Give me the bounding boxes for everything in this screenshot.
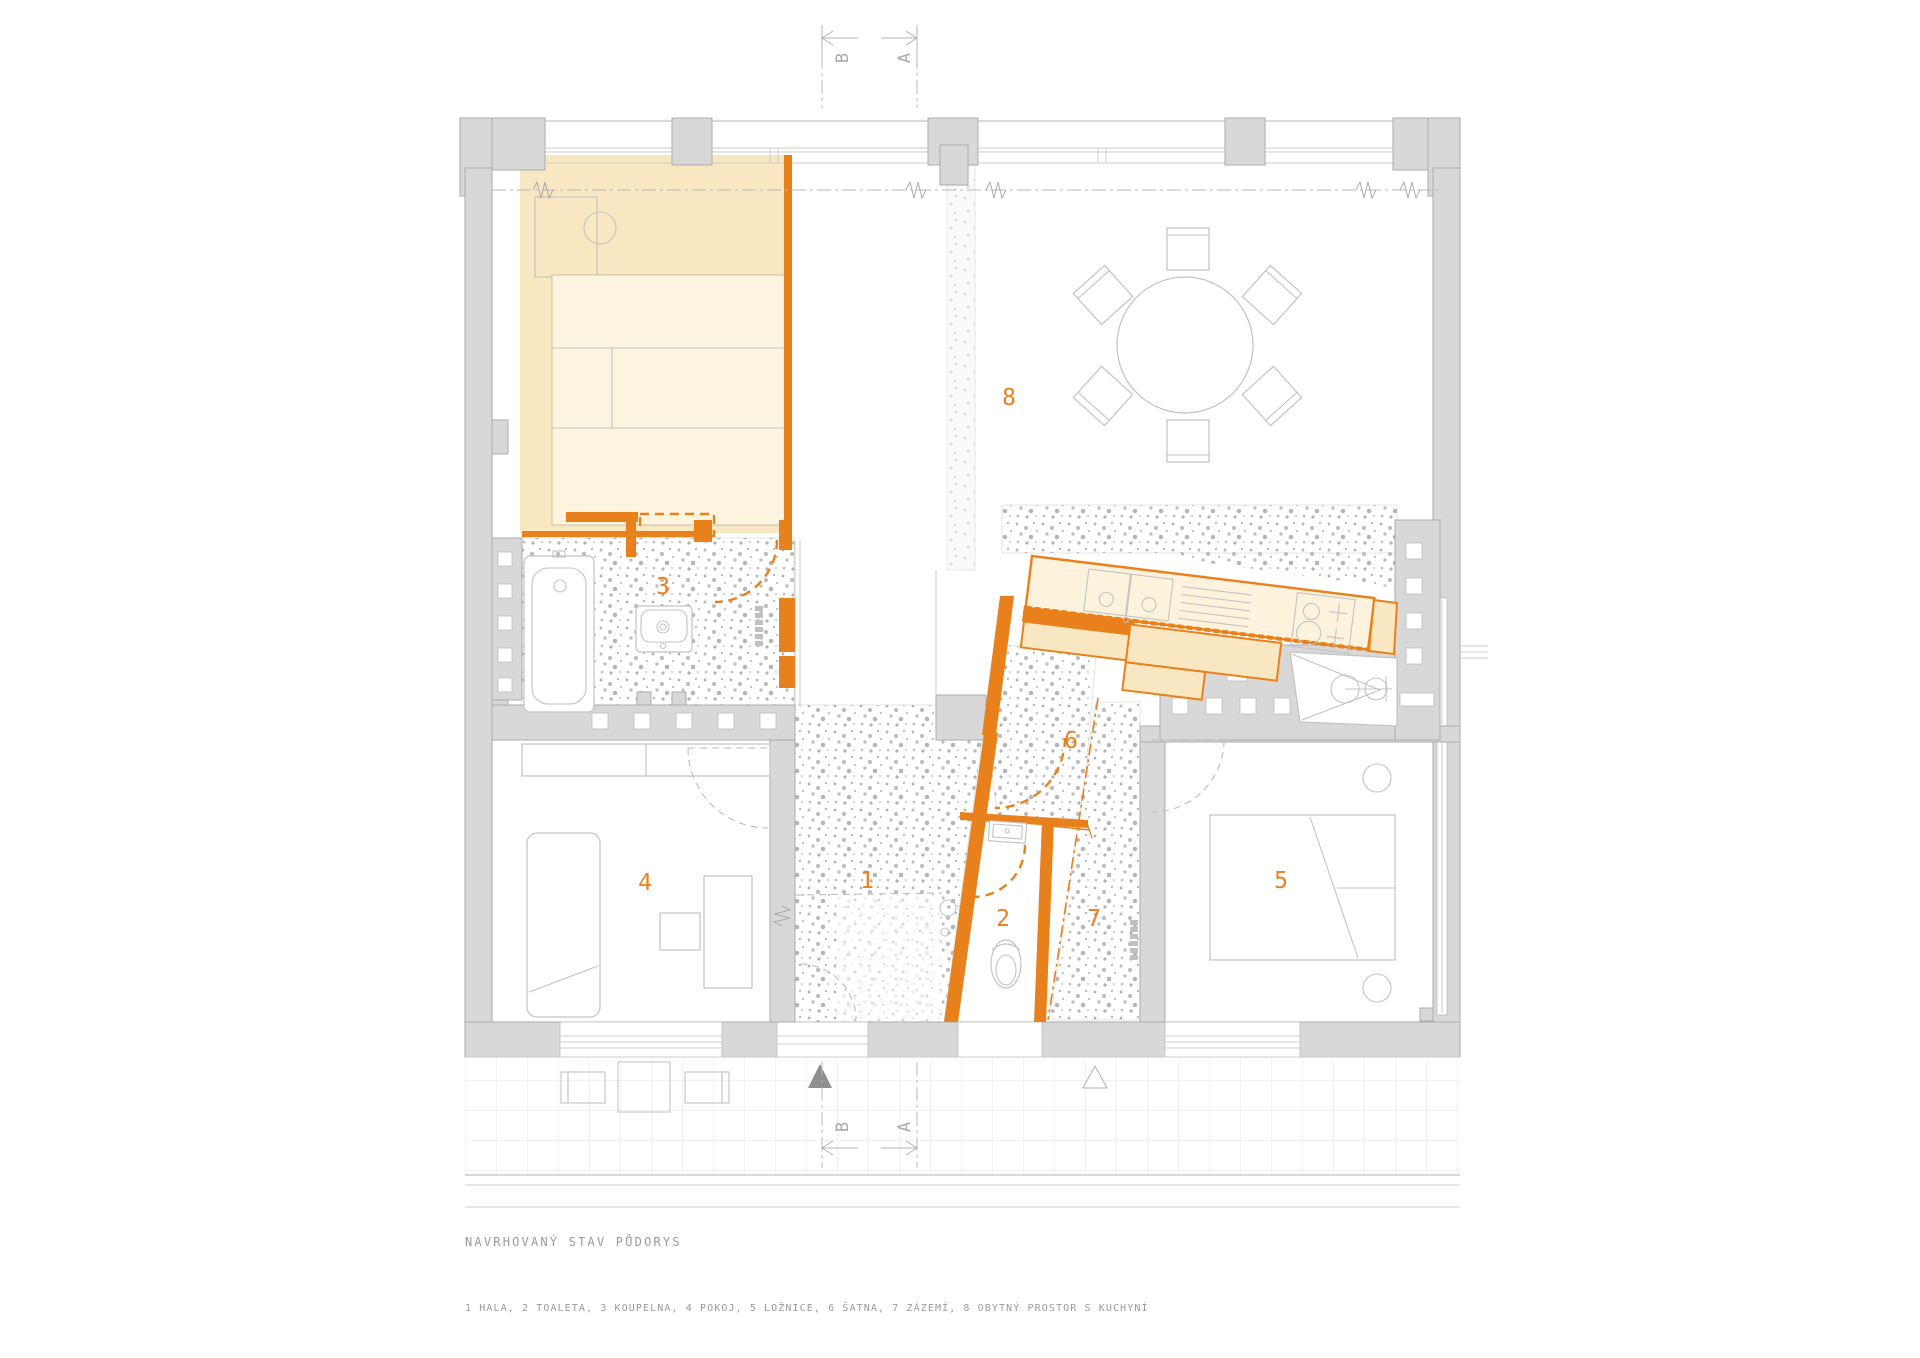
room-number-7: 7 xyxy=(1087,906,1101,932)
toilet-sink xyxy=(988,821,1026,844)
bedside-table xyxy=(1363,764,1391,792)
chair xyxy=(1242,366,1301,425)
demolished-wall-strip xyxy=(947,163,975,570)
drawing-title: NAVRHOVANÝ STAV PŮDORYS xyxy=(465,1234,682,1249)
drawing-legend: 1 HALA, 2 TOALETA, 3 KOUPELNA, 4 POKOJ, … xyxy=(465,1301,1149,1314)
shower xyxy=(1290,652,1397,726)
section-label-a-top: A xyxy=(895,53,915,63)
section-label-a-bottom: A xyxy=(895,1122,915,1132)
chair xyxy=(1167,228,1209,270)
floor-plan-page: B A B A 1 2 3 4 5 6 7 8 NAVRHOVANÝ STAV … xyxy=(0,0,1920,1358)
bedside-table xyxy=(1363,974,1391,1002)
terrace xyxy=(465,1057,1460,1207)
room-number-6: 6 xyxy=(1064,728,1078,754)
double-bed xyxy=(552,275,788,525)
floor-plan-drawing: B A B A 1 2 3 4 5 6 7 8 NAVRHOVANÝ STAV … xyxy=(0,0,1920,1358)
new-walls-bathroom xyxy=(779,598,795,688)
chair xyxy=(1242,265,1301,324)
round-table xyxy=(1117,277,1253,413)
double-bed xyxy=(1210,815,1395,960)
room-number-5: 5 xyxy=(1274,868,1288,894)
dining-set xyxy=(1073,228,1301,462)
chair xyxy=(1167,420,1209,462)
room-4 xyxy=(522,744,790,1017)
washbasin xyxy=(636,606,692,652)
desk xyxy=(660,876,752,988)
room-number-3: 3 xyxy=(656,574,670,600)
section-markers-top: B A xyxy=(822,25,917,108)
room-number-8: 8 xyxy=(1002,385,1016,411)
single-bed xyxy=(527,833,600,1017)
wardrobe xyxy=(522,744,770,776)
room-number-2: 2 xyxy=(996,906,1010,932)
kitchen-end-cabinet xyxy=(1369,600,1397,654)
toilet xyxy=(991,940,1021,988)
section-label-b-top: B xyxy=(833,53,853,63)
room-number-4: 4 xyxy=(638,870,652,896)
room-number-1: 1 xyxy=(860,868,874,894)
bathtub xyxy=(524,551,594,712)
section-label-b-bottom: B xyxy=(833,1122,853,1132)
